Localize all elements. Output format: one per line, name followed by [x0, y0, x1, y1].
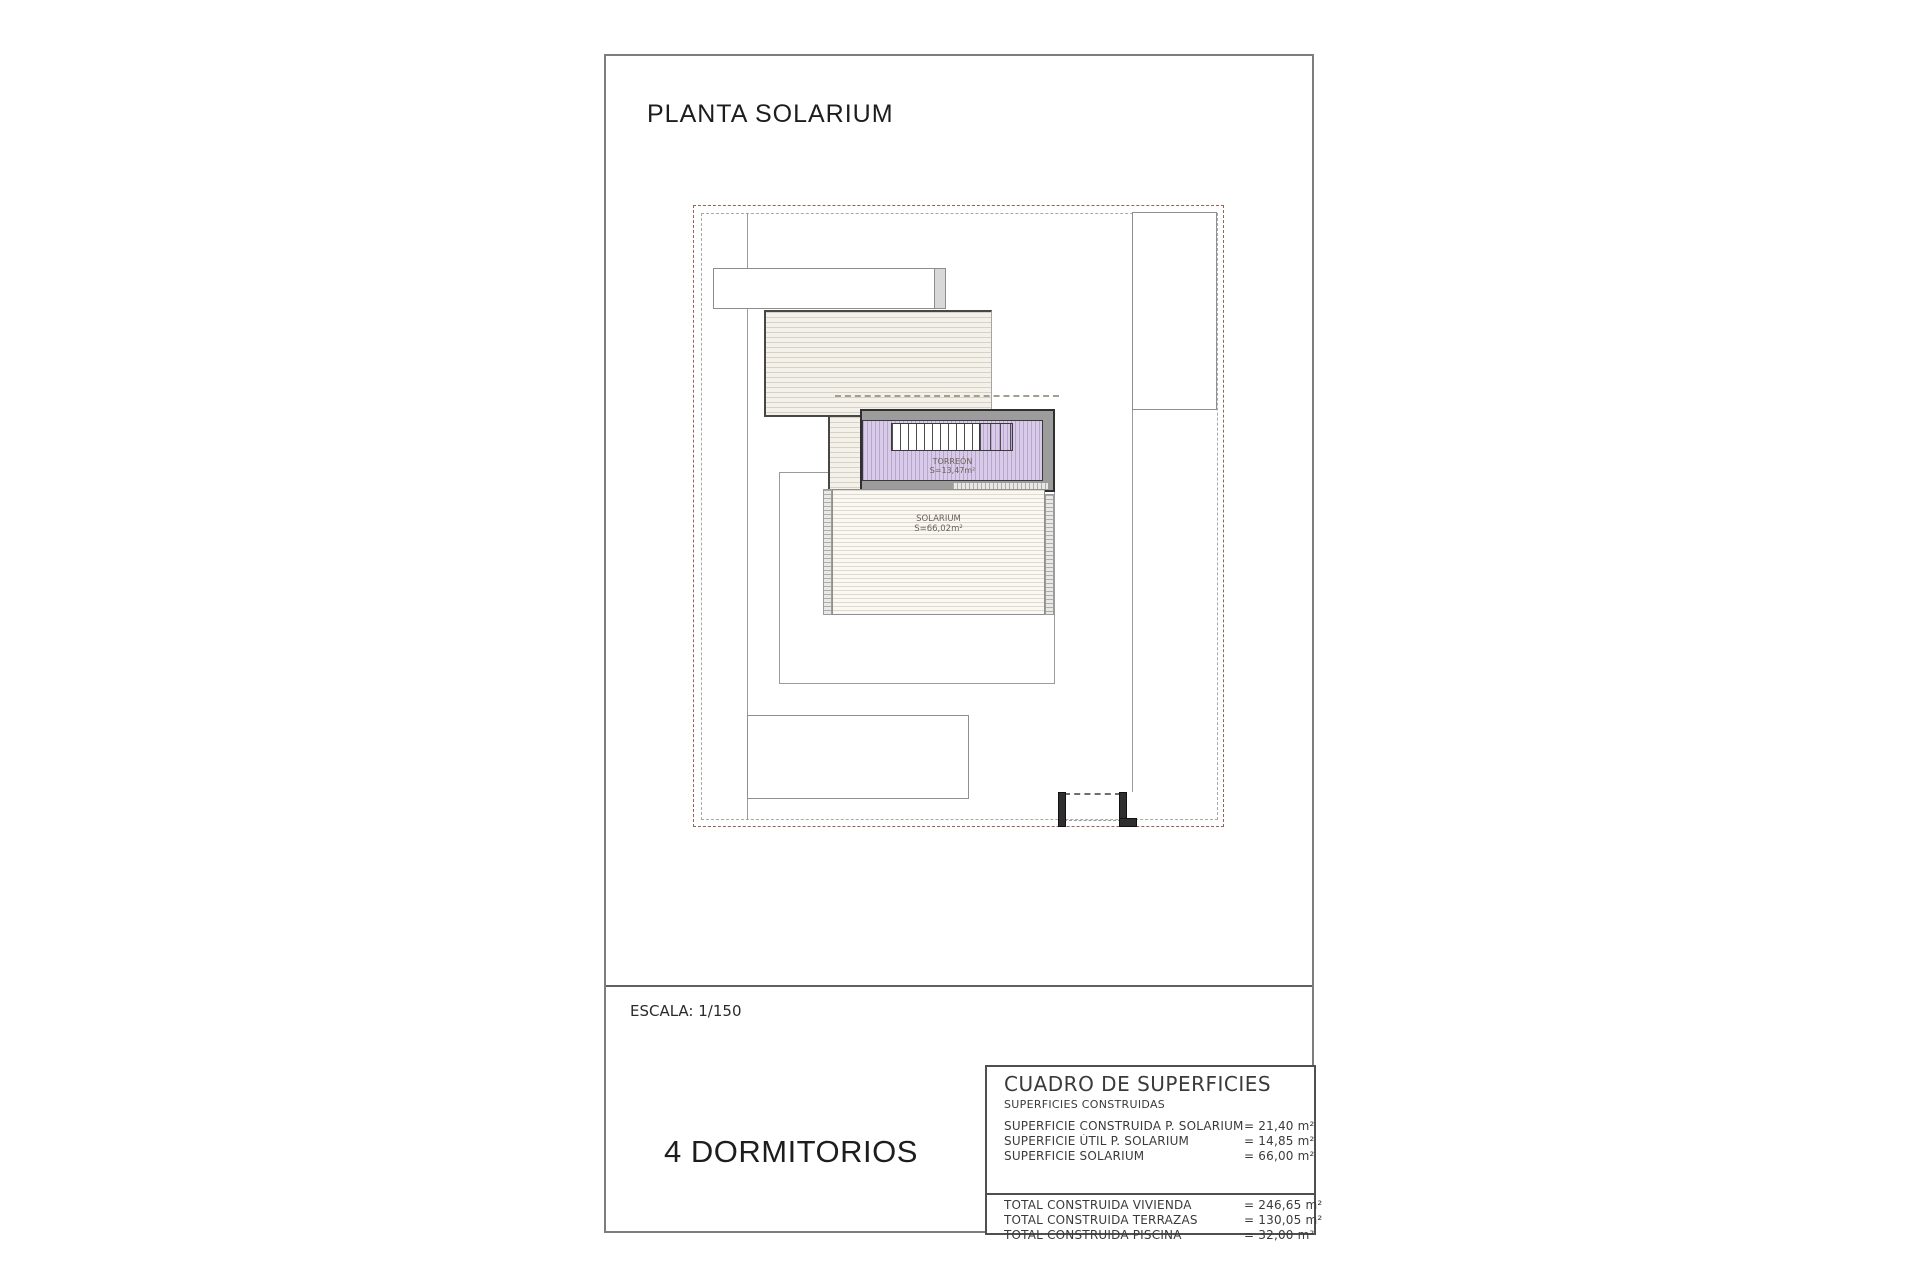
row-value: = 14,85 m² — [1244, 1134, 1315, 1149]
row-value: = 32,00 m² — [1244, 1228, 1315, 1243]
row-value: = 21,40 m² — [1244, 1119, 1315, 1134]
torreon-room: TORREÓN S=13,47m² — [860, 409, 1055, 492]
railing-right — [1045, 494, 1054, 615]
surfaces-table-subtitle: SUPERFICIES CONSTRUIDAS — [1004, 1098, 1165, 1111]
table-row: TOTAL CONSTRUIDA TERRAZAS = 130,05 m² — [1004, 1213, 1308, 1228]
pergola-bar-end — [934, 268, 946, 309]
roof-edge-dashes — [835, 395, 1059, 397]
scale-label: ESCALA: 1/150 — [630, 1002, 741, 1020]
drawing-sheet: PLANTA SOLARIUM TORREÓN S=13,47m² — [604, 54, 1314, 1233]
solarium-area: S=66,02m² — [833, 524, 1044, 534]
railing-left — [823, 489, 832, 615]
surfaces-table: CUADRO DE SUPERFICIES SUPERFICIES CONSTR… — [985, 1065, 1316, 1235]
boundary-wall-line — [1132, 410, 1133, 792]
annex-rectangle — [1132, 212, 1217, 410]
row-label: TOTAL CONSTRUIDA TERRAZAS — [1004, 1213, 1244, 1228]
stairs-upper-treads — [979, 423, 1013, 451]
gate-pillar-left — [1058, 792, 1066, 827]
surfaces-table-rows: SUPERFICIE CONSTRUIDA P. SOLARIUM = 21,4… — [1004, 1119, 1308, 1164]
lower-terrace-rect — [747, 715, 969, 799]
sheet-divider-line — [606, 985, 1312, 987]
table-row: SUPERFICIE CONSTRUIDA P. SOLARIUM = 21,4… — [1004, 1119, 1308, 1134]
table-row: SUPERFICIE ÚTIL P. SOLARIUM = 14,85 m² — [1004, 1134, 1308, 1149]
surfaces-table-title: CUADRO DE SUPERFICIES — [1004, 1072, 1271, 1096]
table-row: TOTAL CONSTRUIDA VIVIENDA = 246,65 m² — [1004, 1198, 1308, 1213]
bedrooms-label: 4 DORMITORIOS — [664, 1134, 918, 1170]
surfaces-table-totals: TOTAL CONSTRUIDA VIVIENDA = 246,65 m² TO… — [1004, 1198, 1308, 1243]
solarium-name: SOLARIUM — [833, 514, 1044, 524]
table-row: SUPERFICIE SOLARIUM = 66,00 m² — [1004, 1149, 1308, 1164]
row-value: = 246,65 m² — [1244, 1198, 1322, 1213]
solarium-terrace: SOLARIUM S=66,02m² — [832, 489, 1045, 615]
table-separator-rule — [987, 1193, 1314, 1195]
roof-hatch-strip — [828, 417, 862, 493]
table-row: TOTAL CONSTRUIDA PISCINA = 32,00 m² — [1004, 1228, 1308, 1243]
row-value: = 66,00 m² — [1244, 1149, 1315, 1164]
row-label: SUPERFICIE CONSTRUIDA P. SOLARIUM — [1004, 1119, 1244, 1134]
torreon-area: S=13,47m² — [863, 466, 1042, 475]
torreon-name: TORREÓN — [863, 457, 1042, 466]
row-value: = 130,05 m² — [1244, 1213, 1322, 1228]
stairs — [891, 423, 981, 451]
gate-dashed-line-top — [1064, 793, 1121, 795]
torreon-label: TORREÓN S=13,47m² — [863, 457, 1042, 475]
row-label: SUPERFICIE ÚTIL P. SOLARIUM — [1004, 1134, 1244, 1149]
row-label: SUPERFICIE SOLARIUM — [1004, 1149, 1244, 1164]
pergola-bar — [713, 268, 946, 309]
solarium-label: SOLARIUM S=66,02m² — [833, 514, 1044, 534]
row-label: TOTAL CONSTRUIDA VIVIENDA — [1004, 1198, 1244, 1213]
torreon-interior: TORREÓN S=13,47m² — [862, 420, 1043, 481]
page-title: PLANTA SOLARIUM — [647, 100, 894, 129]
row-label: TOTAL CONSTRUIDA PISCINA — [1004, 1228, 1244, 1243]
roof-hatch-main — [764, 310, 992, 417]
gate-pillar-foot — [1119, 818, 1137, 827]
gate-dashed-line-bottom — [1064, 820, 1121, 821]
page-background: PLANTA SOLARIUM TORREÓN S=13,47m² — [0, 0, 1920, 1280]
